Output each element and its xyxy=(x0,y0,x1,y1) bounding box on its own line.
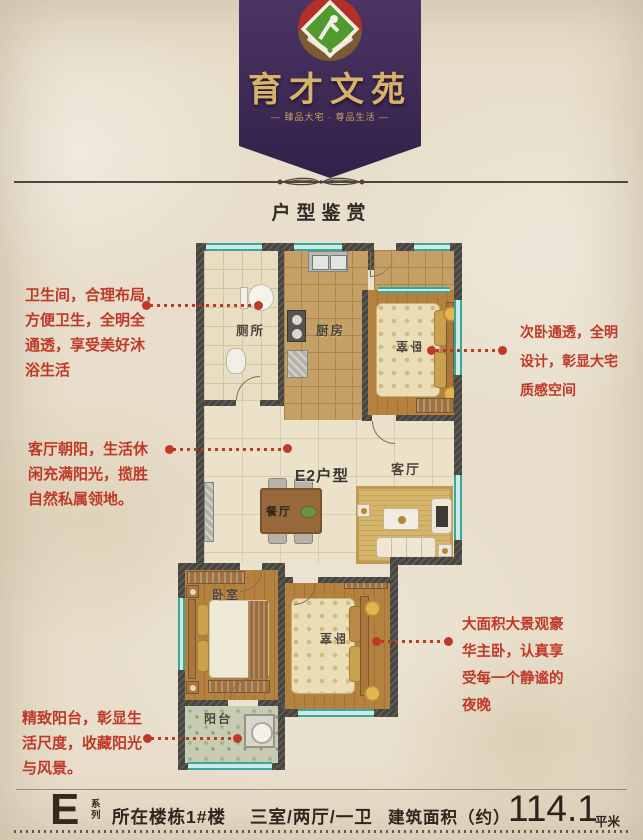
bed-left-headboard xyxy=(188,599,196,679)
annotation-dot xyxy=(143,734,152,743)
window xyxy=(188,762,272,770)
flyer-page: 育才文苑 — 臻品大宅 · 尊品生活 — xyxy=(0,0,643,840)
brand-tagline: — 臻品大宅 · 尊品生活 — xyxy=(239,110,421,123)
nightstand-decor xyxy=(190,589,196,595)
annotation-balcony: 精致阳台，彰显生 活尺度，收藏阳光 与风景。 xyxy=(22,706,142,781)
wall xyxy=(260,400,278,406)
side-table-decor xyxy=(442,548,448,554)
armchair-cushion xyxy=(436,506,448,527)
wall xyxy=(318,577,390,583)
kitchen-counter xyxy=(287,350,308,378)
sink-basin xyxy=(330,255,347,270)
bed-left-pillow xyxy=(197,640,209,672)
room-label-bedroom-left: 卧室 xyxy=(212,586,240,603)
annotation-bedroom-top: 次卧通透，全明 设计，彰显大宅 质感空间 xyxy=(520,318,618,405)
wall xyxy=(204,400,236,406)
window xyxy=(454,300,462,375)
window xyxy=(206,243,262,251)
side-table xyxy=(438,544,452,557)
side-table xyxy=(357,504,370,517)
section-heading: 户型鉴赏 xyxy=(0,198,643,225)
annotation-line xyxy=(151,737,233,740)
sofa xyxy=(376,537,436,558)
wall xyxy=(196,243,204,563)
bathroom-sink xyxy=(226,348,246,374)
window xyxy=(378,287,450,293)
table-plant xyxy=(300,506,317,518)
bed-left-pillow xyxy=(197,604,209,636)
room-label-living: 客厅 xyxy=(391,459,421,478)
nightstand-decor xyxy=(190,685,196,691)
stove xyxy=(287,310,306,342)
annotation-dot xyxy=(165,445,174,454)
annotation-dot xyxy=(372,637,381,646)
nightstand xyxy=(186,681,199,694)
room-label-bathroom: 厕所 xyxy=(236,320,265,339)
series-label: 系 列 xyxy=(91,799,101,821)
nightstand-lamp xyxy=(364,685,381,702)
nightstand-lamp xyxy=(364,600,381,617)
hall-cabinet xyxy=(204,482,214,542)
side-table-decor xyxy=(361,508,367,514)
wall xyxy=(262,563,285,570)
divider-ornament-icon xyxy=(277,173,365,191)
layout-label: 三室/两厅/一卫 xyxy=(250,804,373,829)
wall xyxy=(278,709,285,770)
annotation-dot xyxy=(283,444,292,453)
wall xyxy=(390,557,398,717)
annotation-bedroom-master: 大面积大景观豪 华主卧，认真享 受每一个静谧的 夜晚 xyxy=(462,612,564,720)
wall xyxy=(396,415,454,421)
room-label-dining: 餐厅 xyxy=(266,503,292,519)
annotation-dot xyxy=(142,301,151,310)
burner xyxy=(292,315,302,325)
unit-type-label: E2户型 xyxy=(295,464,349,486)
wall xyxy=(362,290,368,421)
room-label-balcony: 阳台 xyxy=(204,710,232,727)
kitchen-sink xyxy=(308,251,348,272)
annotation-dot xyxy=(427,346,436,355)
series-label-top: 系 xyxy=(91,799,101,810)
bed-left-blanket xyxy=(248,601,268,679)
area-label: 建筑面积（约） xyxy=(388,804,511,828)
bed-left-duvet xyxy=(209,600,269,678)
wall xyxy=(178,563,240,570)
series-label-bottom: 列 xyxy=(91,810,101,821)
window xyxy=(454,475,462,540)
annotation-dot xyxy=(254,301,263,310)
annotation-bathroom: 卫生间，合理布局， 方便卫生，全明全 通透，享受美好沐 浴生活 xyxy=(25,283,160,383)
area-unit: 平米 xyxy=(595,811,620,830)
area-value: 114.1 xyxy=(508,788,598,830)
coffee-table xyxy=(383,508,419,530)
brand-logo-icon xyxy=(297,0,363,62)
wall xyxy=(285,577,293,583)
brand-title: 育才文苑 xyxy=(239,62,421,111)
footer-dotted-line xyxy=(14,830,629,833)
wall xyxy=(362,415,372,421)
wall xyxy=(278,563,285,709)
annotation-dot xyxy=(444,637,453,646)
window xyxy=(178,598,185,670)
annotation-living: 客厅朝阳，生活休 闲充满阳光，揽胜 自然私属领地。 xyxy=(28,437,148,512)
window xyxy=(294,243,342,251)
room-label-bedroom-master: 卧室 xyxy=(318,630,346,647)
nightstand xyxy=(186,585,199,598)
annotation-line xyxy=(381,640,445,643)
room-label-kitchen: 厨房 xyxy=(316,320,345,339)
burner xyxy=(292,329,302,339)
window xyxy=(414,243,450,251)
wall xyxy=(178,763,188,770)
wall xyxy=(278,250,284,406)
armchair xyxy=(431,498,452,534)
washer-drum xyxy=(251,722,273,744)
window xyxy=(298,709,374,717)
dresser xyxy=(416,398,454,413)
series-letter: E xyxy=(50,790,79,830)
table-decor xyxy=(398,516,406,524)
annotation-line xyxy=(150,304,258,307)
dresser xyxy=(187,571,245,584)
wall xyxy=(258,700,285,706)
wall xyxy=(178,700,228,706)
building-label: 所在楼栋1#楼 xyxy=(112,804,226,829)
room-label-bedroom-top: 卧室 xyxy=(394,338,422,355)
annotation-dot xyxy=(233,734,242,743)
annotation-dot xyxy=(498,346,507,355)
wall xyxy=(390,557,462,565)
annotation-line xyxy=(173,448,283,451)
washing-machine xyxy=(244,714,275,748)
sink-basin xyxy=(312,255,329,270)
annotation-line xyxy=(436,349,498,352)
